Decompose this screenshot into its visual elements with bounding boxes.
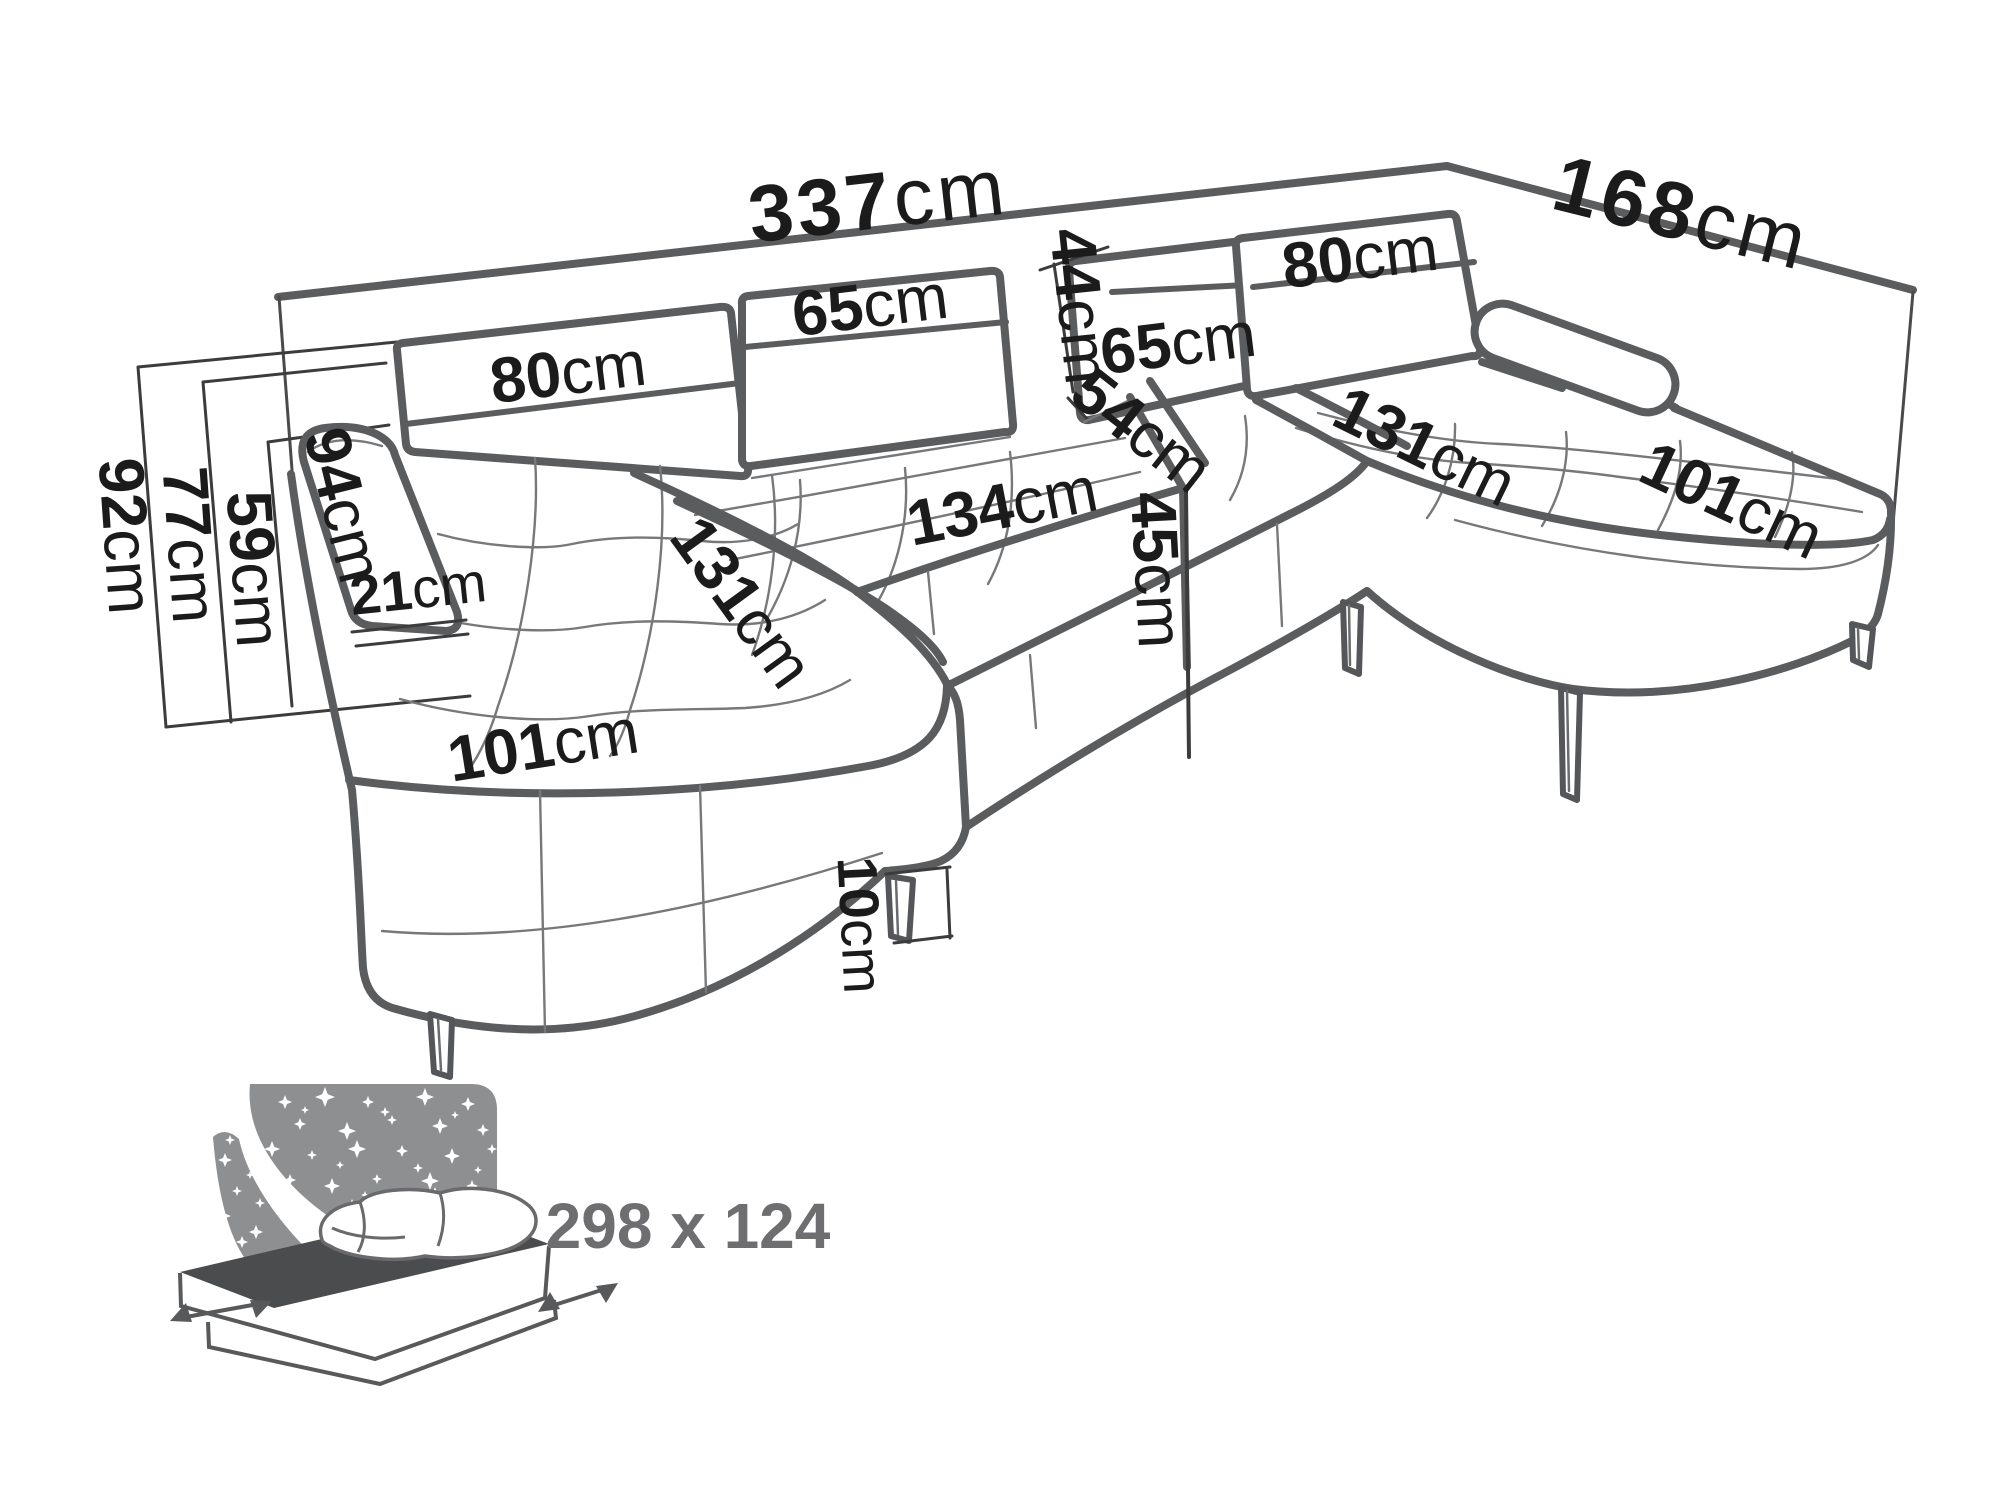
svg-text:59cm: 59cm: [213, 488, 296, 649]
svg-text:45cm: 45cm: [1117, 490, 1197, 650]
svg-text:298 x 124: 298 x 124: [546, 1190, 831, 1262]
svg-text:10cm: 10cm: [825, 855, 895, 995]
